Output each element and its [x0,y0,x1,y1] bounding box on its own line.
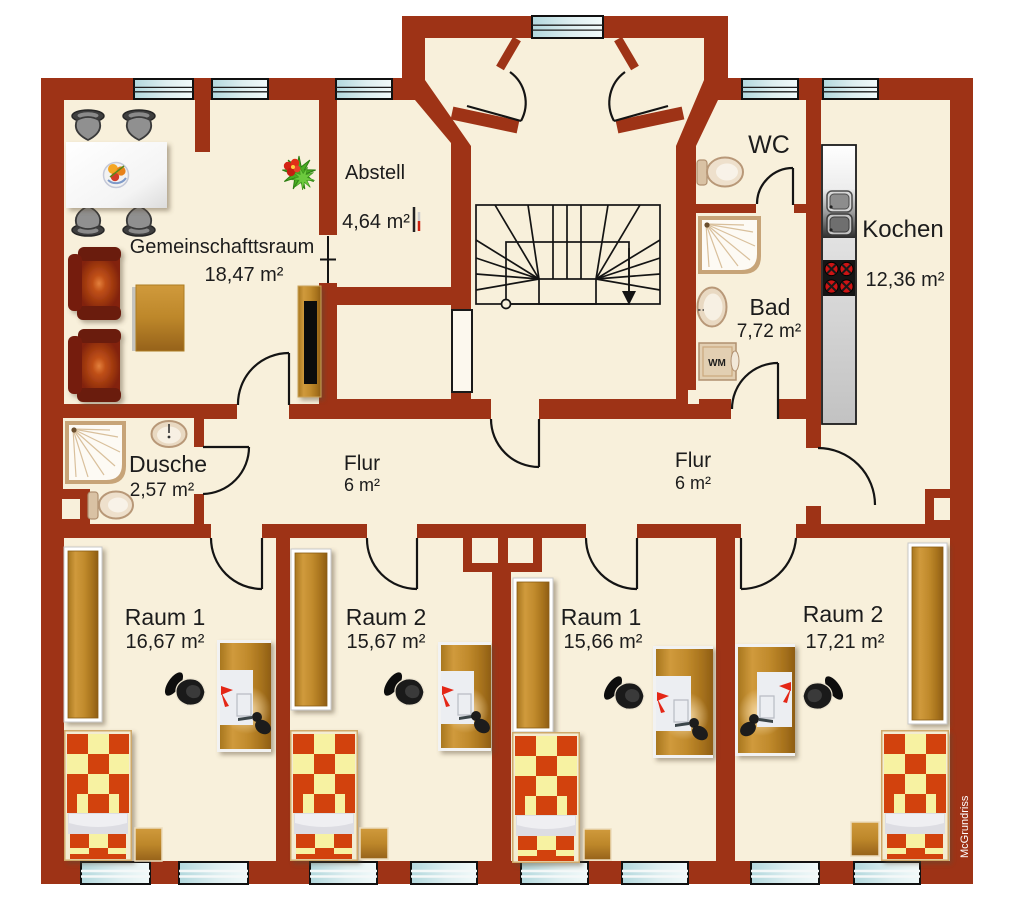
svg-text:Kochen: Kochen [862,216,943,243]
svg-text:Raum 2: Raum 2 [803,601,884,627]
svg-text:Dusche: Dusche [129,451,207,477]
svg-text:2,57 m²: 2,57 m² [130,480,194,501]
svg-text:Abstell: Abstell [345,162,405,184]
svg-text:Raum 2: Raum 2 [346,604,427,630]
svg-text:Bad: Bad [750,294,791,320]
svg-text:Flur: Flur [344,452,380,475]
svg-text:Gemeinschafttsraum: Gemeinschafttsraum [130,236,315,258]
svg-text:12,36 m²: 12,36 m² [866,269,945,291]
svg-text:15,66 m²: 15,66 m² [564,631,643,653]
svg-text:16,67 m²: 16,67 m² [126,631,205,653]
svg-text:7,72 m²: 7,72 m² [737,321,801,342]
svg-text:4,64 m²: 4,64 m² [342,211,410,233]
svg-text:McGrundriss: McGrundriss [959,795,971,858]
svg-text:6 m²: 6 m² [344,475,380,495]
svg-text:17,21 m²: 17,21 m² [806,631,885,653]
svg-text:18,47 m²: 18,47 m² [205,264,284,286]
svg-text:Raum 1: Raum 1 [561,604,642,630]
svg-text:WC: WC [748,131,790,159]
svg-text:15,67 m²: 15,67 m² [347,631,426,653]
svg-text:WM: WM [708,358,726,369]
svg-text:Raum 1: Raum 1 [125,604,206,630]
svg-text:Flur: Flur [675,449,711,472]
svg-text:6 m²: 6 m² [675,473,711,493]
